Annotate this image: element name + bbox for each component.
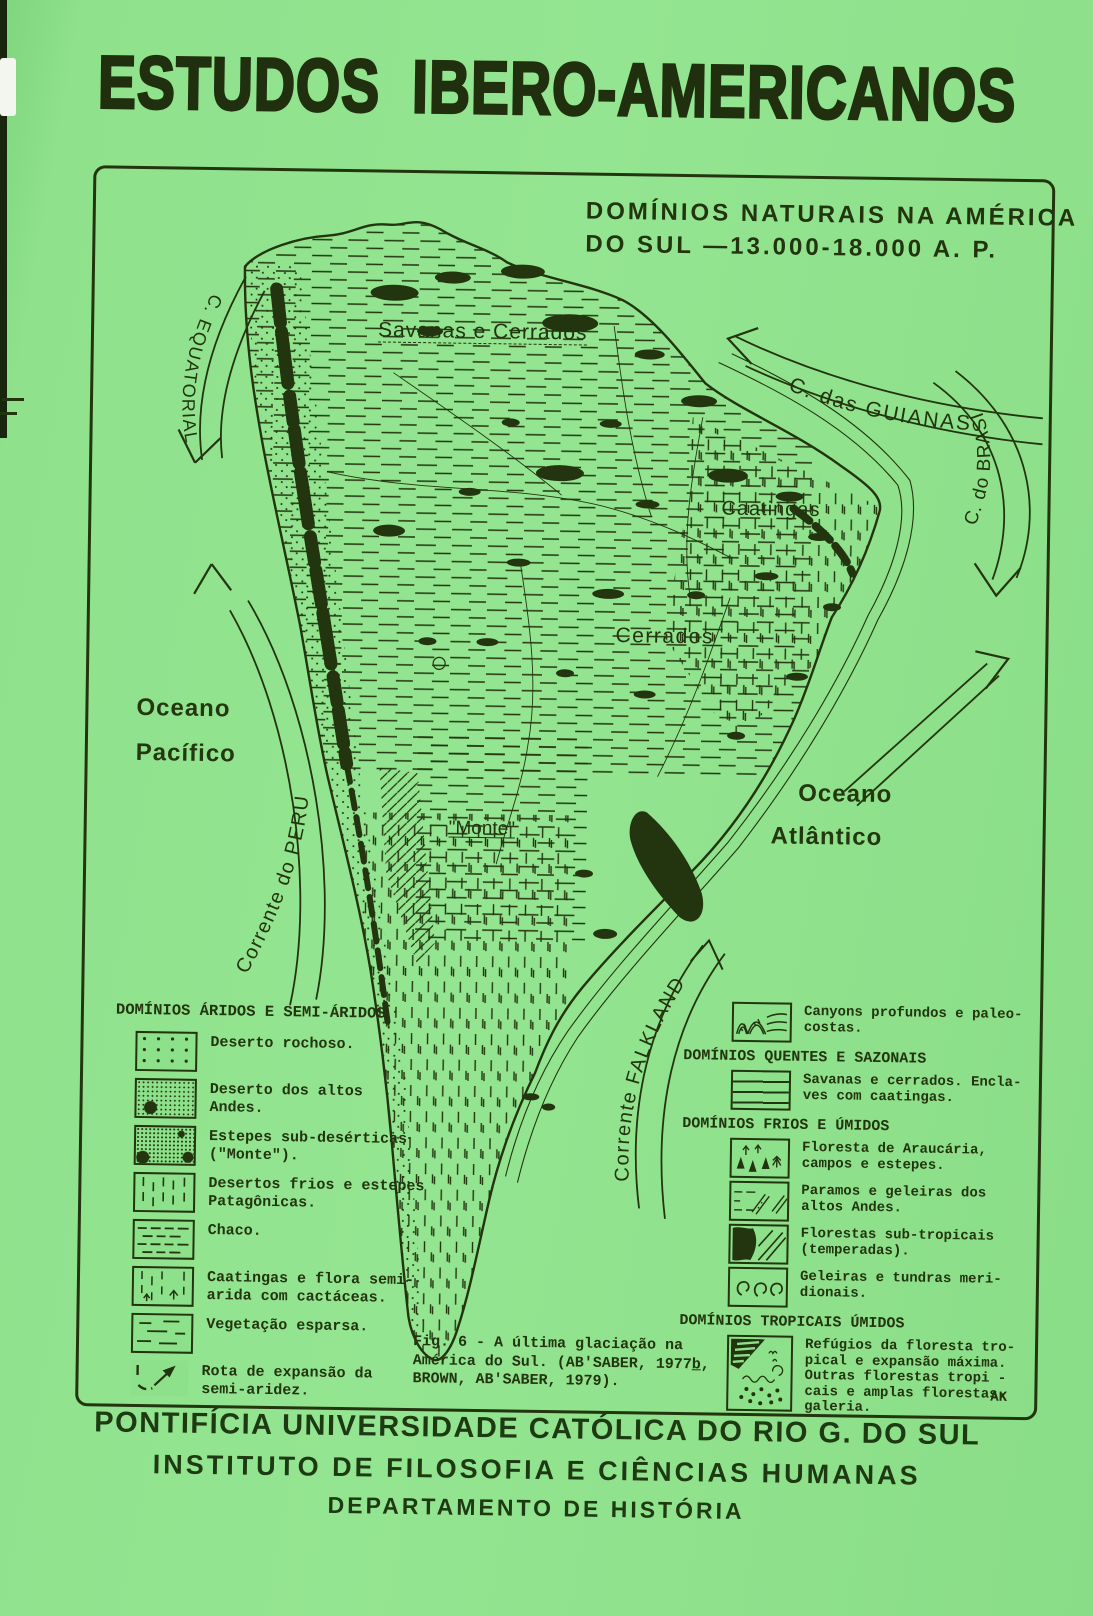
current-label-falkland: Corrente FALKLAND bbox=[611, 972, 690, 1183]
legend-item: Rota de expansão da semi-aridez. bbox=[110, 1360, 437, 1403]
footer-department: DEPARTAMENTO DE HISTÓRIA bbox=[0, 1487, 1083, 1530]
legend-symbol-paramo-glaciers-icon bbox=[729, 1181, 790, 1222]
current-label-peru: Corrente do PERU bbox=[232, 793, 314, 978]
ocean-label-atlantic: Oceano Atlântico bbox=[770, 771, 892, 859]
legend-header-quentes: DOMÍNIOS QUENTES E SAZONAIS bbox=[683, 1047, 1039, 1069]
artist-signature: AK bbox=[990, 1390, 1007, 1406]
legend-symbol-expansion-arrow-icon bbox=[130, 1360, 189, 1397]
legend-item: Chaco. bbox=[112, 1219, 439, 1264]
journal-title: ESTUDOS IBERO-AMERICANOS bbox=[37, 38, 1077, 139]
legend-item: Savanas e cerrados. Encla- ves com caati… bbox=[683, 1069, 1040, 1114]
legend-item: Caatingas e flora semi- arida com cactác… bbox=[112, 1266, 439, 1311]
legend-item: Deserto rochoso. bbox=[115, 1031, 442, 1076]
legend-symbol-glacier-swirls-icon bbox=[728, 1267, 789, 1308]
footer-institute: INSTITUTO DE FILOSOFIA E CIÊNCIAS HUMANA… bbox=[0, 1447, 1083, 1494]
legend-item: Floresta de Araucária, campos e estepes. bbox=[682, 1137, 1039, 1182]
map-figure: C. EQUATORIAL C. das GUIANAS C. do BRASI… bbox=[75, 165, 1055, 1420]
map-label-caatingas: Caatingas bbox=[721, 498, 820, 522]
legend-item: Desertos frios e estepes Patagônicas. bbox=[113, 1172, 440, 1217]
legend-item: Canyons profundos e paleo- costas. bbox=[684, 1001, 1041, 1046]
legend-item: Geleiras e tundras meri- dionais. bbox=[680, 1266, 1037, 1311]
ocean-label-pacific: Oceano Pacífico bbox=[135, 685, 236, 776]
map-title-line2: DO SUL —13.000-18.000 A. P. bbox=[585, 228, 1045, 268]
map-title: DOMÍNIOS NATURAIS NA AMÉRICA DO SUL —13.… bbox=[585, 195, 1046, 268]
legend-item: Vegetação esparsa. bbox=[111, 1313, 438, 1358]
scanned-journal-cover: ESTUDOS IBERO-AMERICANOS bbox=[0, 0, 1093, 1616]
legend-arid-domains: DOMÍNIOS ÁRIDOS E SEMI-ÁRIDOS Deserto ro… bbox=[110, 1001, 442, 1410]
legend-symbol-subtropical-forest-icon bbox=[728, 1224, 789, 1265]
legend-item: Deserto dos altos Andes. bbox=[114, 1078, 441, 1123]
legend-item: Florestas sub-tropicais (temperadas). bbox=[680, 1223, 1037, 1268]
legend-right-domains: Canyons profundos e paleo- costas. DOMÍN… bbox=[678, 1001, 1040, 1422]
institution-footer: PONTIFÍCIA UNIVERSIDADE CATÓLICA DO RIO … bbox=[0, 1405, 1084, 1530]
current-label-equatorial: C. EQUATORIAL bbox=[178, 291, 227, 446]
map-label-monte: "Monte" bbox=[449, 818, 516, 841]
legend-symbol-canyons-icon bbox=[732, 1002, 793, 1043]
map-label-savanas-cerrados: Savanas e Cerrados bbox=[378, 318, 588, 345]
legend-symbol-horizontal-lines-icon bbox=[731, 1070, 792, 1111]
legend-symbol-horizontal-dashes-icon bbox=[132, 1219, 195, 1260]
legend-symbol-araucaria-trees-icon bbox=[730, 1138, 791, 1179]
legend-symbol-stipple-icon bbox=[134, 1078, 197, 1119]
legend-header-frios: DOMÍNIOS FRIOS E ÚMIDOS bbox=[682, 1115, 1038, 1137]
legend-item: Estepes sub-desérticas ("Monte"). bbox=[114, 1125, 441, 1170]
figure-caption: Fig. 6 - A última glaciação na América d… bbox=[412, 1333, 725, 1393]
page-content: ESTUDOS IBERO-AMERICANOS bbox=[0, 0, 1093, 1616]
legend-symbol-dots-sparse-icon bbox=[135, 1031, 198, 1072]
legend-symbol-caatinga-plants-icon bbox=[132, 1266, 195, 1307]
legend-symbol-vertical-dashes-icon bbox=[133, 1172, 196, 1213]
legend-symbol-tropical-forest-icon bbox=[726, 1335, 793, 1412]
legend-symbol-sparse-dashes-icon bbox=[131, 1313, 194, 1354]
legend-symbol-stipple-clumps-icon bbox=[134, 1125, 197, 1166]
legend-item: Paramos e geleiras dos altos Andes. bbox=[681, 1180, 1038, 1225]
legend-header-tropicais: DOMÍNIOS TROPICAIS ÚMIDOS bbox=[679, 1312, 1035, 1334]
legend-item: Refúgios da floresta tro- pical e expans… bbox=[678, 1334, 1035, 1419]
legend-header-arid: DOMÍNIOS ÁRIDOS E SEMI-ÁRIDOS bbox=[116, 1001, 442, 1024]
map-label-cerrados: Cerrados bbox=[615, 624, 714, 649]
